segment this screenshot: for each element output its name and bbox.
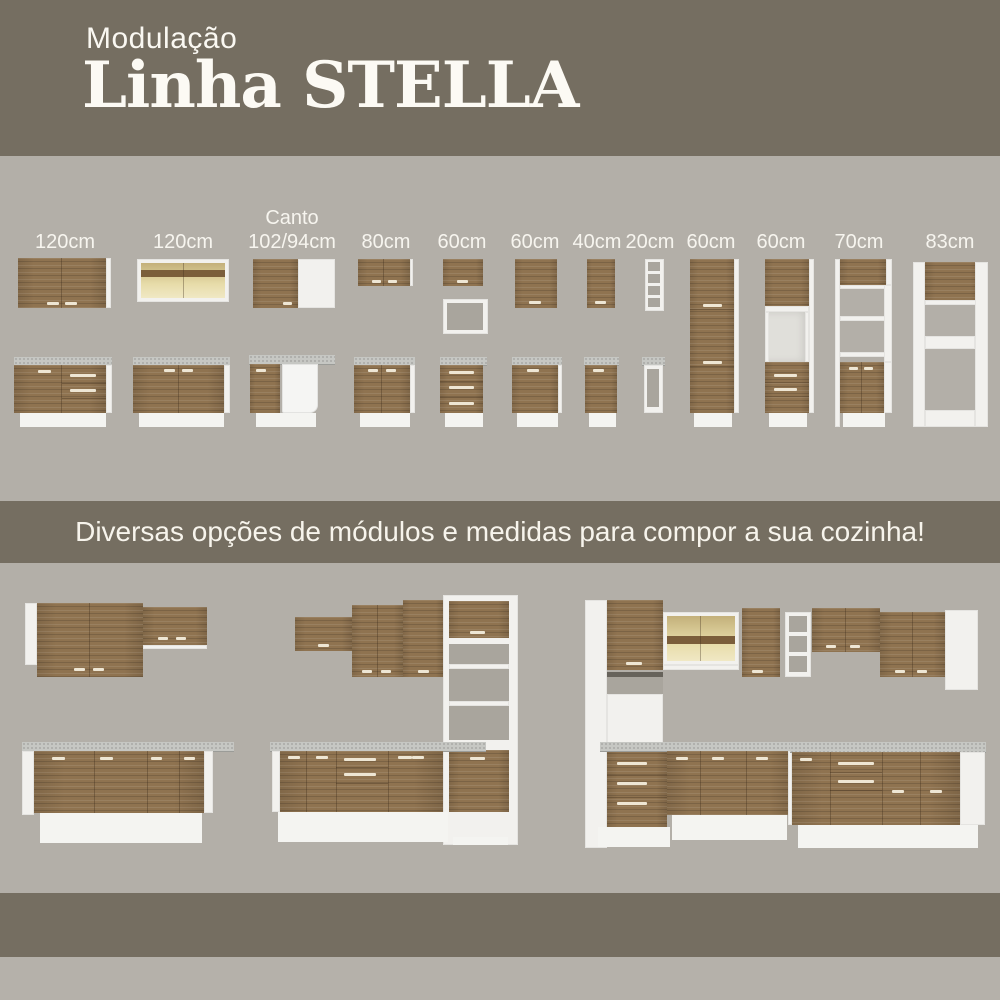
compacta-wall2-front — [143, 607, 207, 645]
compacta-base-panel-l — [22, 751, 34, 815]
m60b-wall-handle — [529, 301, 541, 304]
m70-plinth — [843, 413, 885, 427]
m70-handle-l — [849, 367, 858, 370]
compacta-wall2-shelf — [143, 645, 207, 649]
mcanto-wall-handle — [283, 302, 292, 305]
m80-wall-seam — [383, 259, 384, 286]
m120b-wall-seam — [183, 263, 184, 298]
compacta-wall2-handle-l — [158, 637, 168, 640]
media-base-handle2 — [316, 756, 328, 759]
grande-tower-dhandle2 — [617, 782, 647, 785]
m20-shelf-open2 — [648, 274, 660, 283]
grande-basel-handle3 — [756, 757, 768, 760]
module-size-label-top — [880, 206, 1000, 230]
compacta-base-handle1 — [52, 757, 65, 760]
mcanto-base-plinth — [256, 413, 316, 427]
m60f-top-door — [765, 259, 809, 306]
m120a-base-handle-door — [38, 370, 51, 373]
grande-tower-dseam1 — [607, 775, 667, 776]
grande-tower-top-handle — [626, 662, 642, 665]
compacta-base-plinth — [40, 813, 202, 843]
media-wall2-handle-r — [381, 670, 391, 673]
grande-baser-seam2 — [882, 752, 883, 825]
grande-tower-panel-l — [585, 600, 607, 848]
m20-shelf-open4 — [648, 298, 660, 307]
m60f-side — [809, 259, 814, 413]
media-base-seam2 — [336, 751, 337, 812]
media-base-seam3 — [388, 751, 389, 812]
m60f-plinth — [769, 413, 807, 427]
m80-base-plinth — [360, 413, 410, 427]
m80-wall-handle-r — [388, 280, 397, 283]
compacta-wall-seam — [89, 603, 90, 677]
m60a-base-seam1 — [440, 381, 483, 382]
module-size-label-main: 83cm — [880, 230, 1000, 254]
compacta-wall2-handle-r — [176, 637, 186, 640]
compacta-base-seam2 — [147, 751, 148, 813]
m60a-base-handle3 — [449, 402, 474, 405]
grande-tower-dhandle3 — [617, 802, 647, 805]
media-base-seam1 — [306, 751, 307, 812]
m60f-dseam1 — [765, 382, 809, 383]
grande-wallr1-handle-l — [826, 645, 836, 648]
compacta-base-side-r — [204, 751, 213, 813]
m120b-base-handle-l — [164, 369, 175, 372]
m80-base-side — [410, 365, 415, 413]
mcanto-wall-door — [253, 259, 298, 308]
grande-basel-seam2 — [746, 751, 747, 815]
grande-wallr1-seam — [845, 608, 846, 652]
m70-base-doors — [840, 362, 884, 413]
mcanto-base-appliance — [282, 364, 318, 413]
media-base-dseam1 — [336, 767, 388, 768]
grande-wallr2-handle-r — [917, 670, 927, 673]
m80-base-seam — [381, 365, 382, 413]
m60b-base-side — [558, 365, 562, 413]
grande-baser-dhandle2 — [838, 780, 874, 783]
m60a-base-handle1 — [449, 371, 474, 374]
grande-tower-plinth — [598, 827, 670, 847]
m80-wall-front — [358, 259, 410, 286]
compacta-base-handle4 — [184, 757, 195, 760]
m60f-niche — [765, 312, 809, 362]
media-tower-plinth — [453, 837, 508, 845]
m60a-base-plinth — [445, 413, 483, 427]
grande-corner-open3 — [789, 656, 807, 672]
grande-baser-dseam1 — [830, 772, 882, 773]
grande-basel-plinth — [672, 815, 787, 840]
compacta-wall-handle-l — [74, 668, 85, 671]
m70-shelf-a — [840, 316, 888, 321]
header-band: Modulação Linha STELLA — [0, 0, 1000, 156]
m70-top-side — [886, 259, 892, 285]
grande-corner-open2 — [789, 636, 807, 652]
compacta-base-handle2 — [100, 757, 113, 760]
m60b-base-handle — [527, 369, 539, 372]
grande-baser-handle2 — [892, 790, 904, 793]
m120a-wall-seam — [61, 258, 62, 308]
m60a-wall-handle — [457, 280, 468, 283]
m60f-dseam2 — [765, 396, 809, 397]
grande-baser-dseam2 — [830, 790, 882, 791]
grande-baser-plinth — [798, 825, 978, 848]
m60b-base-plinth — [517, 413, 558, 427]
media-wall3-front — [403, 600, 443, 677]
m40-wall-handle — [595, 301, 606, 304]
media-tower-shelf1 — [449, 664, 509, 669]
media-base-dseam2 — [336, 783, 388, 784]
grande-tower-top-door — [607, 600, 663, 670]
grande-wallr1-handle-r — [850, 645, 860, 648]
m80-wall-handle-l — [372, 280, 381, 283]
m60a-base-seam2 — [440, 397, 483, 398]
m70-col-r — [884, 285, 892, 362]
grande-glass-shelf — [663, 665, 739, 670]
m70-shelf-b — [840, 352, 888, 357]
footer-band: CompactaMédiaGrande — [0, 893, 1000, 957]
m120a-wall-side — [106, 258, 111, 308]
media-tower-shelf2 — [449, 701, 509, 706]
m60a-base-handle2 — [449, 386, 474, 389]
m70-base-seam — [861, 362, 862, 413]
grande-basel-handle1 — [676, 757, 688, 760]
grande-tower-niche — [607, 677, 663, 694]
grande-wall-small — [742, 608, 780, 677]
m120a-wall-handle-l — [47, 302, 59, 305]
m40-base-handle — [593, 369, 604, 372]
m20-shelf-open1 — [648, 262, 660, 271]
grande-wallr-panel — [945, 610, 978, 690]
grande-baser-seam1 — [830, 752, 831, 825]
m60t-handle1 — [703, 304, 722, 307]
m83-shelf-mid — [925, 336, 975, 349]
banner-band: Diversas opções de módulos e medidas par… — [0, 501, 1000, 563]
m120a-base-seam — [61, 365, 62, 413]
m120a-wall-handle-r — [65, 302, 77, 305]
m40-base-plinth — [589, 413, 616, 427]
m70-base-side — [884, 362, 892, 413]
page-title: Linha STELLA — [82, 48, 578, 123]
m70-top — [840, 259, 886, 285]
compacta-base-handle3 — [151, 757, 162, 760]
m83-bottom — [925, 410, 975, 427]
m40-base-front — [585, 365, 617, 413]
media-base-handle3 — [398, 756, 412, 759]
m60f-handle2 — [774, 388, 797, 391]
media-wall3-handle — [418, 670, 429, 673]
m70-frame-top — [840, 285, 888, 289]
m60f-handle1 — [774, 374, 797, 377]
media-base-handle1 — [288, 756, 300, 759]
m60t-plinth — [694, 413, 732, 427]
mcanto-wall-white — [298, 259, 335, 308]
m83-top — [925, 262, 980, 300]
grande-basel-handle2 — [712, 757, 724, 760]
media-base-dhandle1 — [344, 758, 376, 761]
compacta-base-seam1 — [94, 751, 95, 813]
grande-basel-front — [667, 751, 792, 815]
m120a-base-handle-d1 — [70, 374, 96, 377]
m120b-base-side — [224, 365, 230, 413]
m120b-base-seam — [178, 365, 179, 413]
m60f-niche-right — [805, 312, 809, 362]
banner-text: Diversas opções de módulos e medidas par… — [75, 516, 925, 548]
m60b-base-front — [512, 365, 558, 413]
m120a-base-drawer-seam1 — [62, 383, 106, 384]
grande-baser-dhandle1 — [838, 762, 874, 765]
compacta-wall-panel-l — [25, 603, 37, 665]
media-base-plinth — [278, 812, 448, 842]
grande-wall-small-handle — [752, 670, 763, 673]
grande-baser-front — [792, 752, 960, 825]
m120a-base-handle-d2 — [70, 389, 96, 392]
grande-tower-dseam2 — [607, 797, 667, 798]
module-size-label: 83cm — [880, 206, 1000, 254]
media-wall2-handle-l — [362, 670, 372, 673]
m20-shelf-open3 — [648, 286, 660, 295]
media-tower-bottom-handle — [470, 757, 485, 760]
media-base-dhandle2 — [344, 773, 376, 776]
m120b-base-plinth — [139, 413, 224, 427]
footer-strip — [0, 957, 1000, 1000]
grande-glass-seam — [700, 616, 701, 661]
m120a-base-plinth — [20, 413, 106, 427]
m60t-seam1 — [690, 309, 734, 310]
compacta-wall-front — [37, 603, 143, 677]
m60t-front — [690, 259, 734, 413]
m20-base-open — [647, 369, 659, 407]
m120a-base-side — [106, 365, 112, 413]
m60t-side — [734, 259, 739, 413]
media-wall1-handle — [318, 644, 329, 647]
m120a-wall-front — [18, 258, 106, 308]
grande-tower-dhandle1 — [617, 762, 647, 765]
m80-base-front — [354, 365, 410, 413]
compacta-base-seam3 — [179, 751, 180, 813]
grande-basel-seam1 — [700, 751, 701, 815]
m60t-handle2 — [703, 361, 722, 364]
media-tower-top-handle — [470, 631, 485, 634]
grande-baser-seam3 — [920, 752, 921, 825]
m83-top-shelf — [925, 300, 980, 305]
media-wall2-seam — [377, 605, 378, 677]
m80-base-handle-l — [368, 369, 378, 372]
m83-col-r — [975, 262, 988, 427]
grande-wallr2-seam — [912, 612, 913, 677]
m80-wall-side — [410, 259, 413, 286]
media-tower-open — [449, 644, 509, 740]
media-base-handle4 — [412, 756, 424, 759]
m70-handle-r — [864, 367, 873, 370]
m83-panel-l — [913, 262, 925, 427]
compacta-wall-handle-r — [93, 668, 104, 671]
m60f-niche-left — [765, 312, 769, 362]
m120b-base-handle-r — [182, 369, 193, 372]
poster: Modulação Linha STELLA 120cm120cmCanto10… — [0, 0, 1000, 1000]
grande-wallr1-front — [812, 608, 880, 652]
grande-wallr2-handle-l — [895, 670, 905, 673]
m80-base-handle-r — [386, 369, 396, 372]
grande-corner-open1 — [789, 616, 807, 632]
grande-baser-handle1 — [800, 758, 812, 761]
m60t-seam2 — [690, 366, 734, 367]
m120a-base-drawer-seam2 — [62, 398, 106, 399]
mcanto-base-handle — [256, 369, 266, 372]
m60a-nicho-open — [447, 303, 483, 330]
grande-baser-side — [960, 752, 985, 825]
media-base-panel-l — [272, 751, 280, 812]
grande-baser-handle3 — [930, 790, 942, 793]
grande-glass-band — [667, 636, 735, 644]
